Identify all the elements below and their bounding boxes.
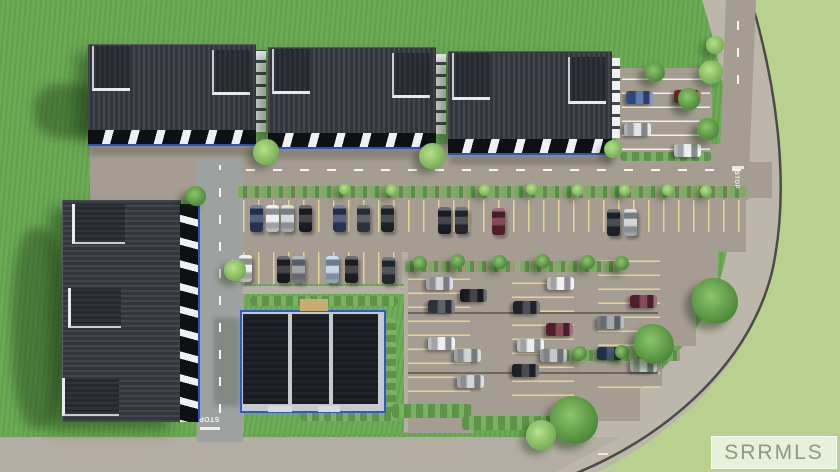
tree <box>526 420 556 450</box>
tree <box>662 184 674 196</box>
tree <box>699 60 723 84</box>
tree <box>413 256 427 270</box>
parked-car <box>546 323 573 336</box>
clubhouse-roof-panel <box>292 314 329 404</box>
parked-car <box>333 205 346 232</box>
parked-car <box>281 205 294 232</box>
tree <box>706 36 724 54</box>
parked-car <box>299 205 312 232</box>
stall-group-northeast <box>622 74 710 150</box>
dormer <box>92 46 130 91</box>
site-plan-rendering: STOP STOP SRRMLS <box>0 0 840 472</box>
rowhouse-facade-1 <box>88 130 256 146</box>
dormer <box>392 53 430 98</box>
parked-car <box>428 300 455 313</box>
dormer <box>272 49 310 94</box>
tree <box>572 184 584 196</box>
tree <box>386 184 398 196</box>
parked-car <box>674 144 701 157</box>
tree <box>573 346 587 360</box>
building-shadow <box>12 228 66 428</box>
tree <box>536 254 550 268</box>
stop-bar-west <box>200 427 220 430</box>
shrub-row <box>392 404 472 418</box>
parked-car <box>277 256 290 283</box>
clubhouse-step <box>268 406 292 412</box>
tree <box>479 184 491 196</box>
clubhouse-roof-panel <box>333 314 378 404</box>
tree <box>692 278 738 324</box>
parked-car <box>326 256 339 283</box>
parked-car <box>512 364 539 377</box>
clubhouse-entry <box>300 299 328 311</box>
parked-car <box>457 375 484 388</box>
rowhouse-facade-3 <box>448 139 612 155</box>
facade-shade <box>270 149 436 159</box>
parked-car <box>292 256 305 283</box>
dormer <box>72 204 125 244</box>
facade-shade <box>90 146 258 156</box>
parked-car <box>607 209 620 236</box>
clubhouse-step <box>318 406 340 412</box>
parked-car <box>455 207 468 234</box>
walkway <box>243 286 405 294</box>
dormer <box>62 378 119 416</box>
shrub-row <box>300 412 396 421</box>
lane-dot-south-road <box>598 453 608 455</box>
dormer <box>68 288 121 328</box>
dormer <box>452 53 490 100</box>
dormer <box>568 57 606 104</box>
stall-row-second <box>243 252 405 284</box>
parked-car <box>492 208 505 235</box>
tree <box>186 186 206 206</box>
tree <box>619 184 631 196</box>
rowhouse-facade-2 <box>268 133 436 149</box>
rowhouse-facade-west <box>180 204 200 422</box>
parked-car <box>438 207 451 234</box>
clubhouse-roof-panel <box>243 314 288 404</box>
stop-marking-west-road: STOP <box>192 413 226 423</box>
tree <box>526 183 538 195</box>
parked-car <box>630 295 657 308</box>
mls-watermark: SRRMLS <box>711 436 837 469</box>
tree <box>700 185 712 197</box>
tree <box>253 139 279 165</box>
parked-car <box>357 205 370 232</box>
tree <box>339 183 351 195</box>
building-shade <box>214 318 240 406</box>
parked-car <box>382 257 395 284</box>
parked-car <box>624 209 637 236</box>
tree <box>224 259 246 281</box>
parked-car <box>345 256 358 283</box>
parked-car <box>428 337 455 350</box>
tree <box>615 256 629 270</box>
planter-strip <box>520 261 620 272</box>
tree <box>634 324 674 364</box>
parked-car <box>454 349 481 362</box>
parked-car <box>597 316 624 329</box>
tree <box>604 140 622 158</box>
parked-car <box>266 205 279 232</box>
tree <box>451 254 465 268</box>
dormer <box>212 50 250 95</box>
stop-marking-north-road: STOP <box>733 169 741 191</box>
tree <box>678 88 700 110</box>
end-wall <box>256 50 266 132</box>
west-road-dash-line <box>219 165 221 413</box>
tree <box>697 118 719 140</box>
tree <box>645 62 665 82</box>
parked-car <box>540 349 567 362</box>
tree <box>550 396 598 444</box>
parked-car <box>624 123 651 136</box>
parked-car <box>513 301 540 314</box>
end-wall <box>436 54 446 134</box>
parked-car <box>460 289 487 302</box>
parked-car <box>250 205 263 232</box>
north-road-dash-line <box>737 12 739 84</box>
tree <box>581 255 595 269</box>
tree <box>615 345 629 359</box>
parked-car <box>381 205 394 232</box>
parked-car <box>626 91 653 104</box>
parked-car <box>426 277 453 290</box>
facade-shade <box>450 155 612 165</box>
tree <box>493 255 507 269</box>
tree <box>419 143 445 169</box>
end-wall <box>612 58 620 138</box>
parked-car <box>547 277 574 290</box>
aisle-dash-line <box>246 169 742 171</box>
